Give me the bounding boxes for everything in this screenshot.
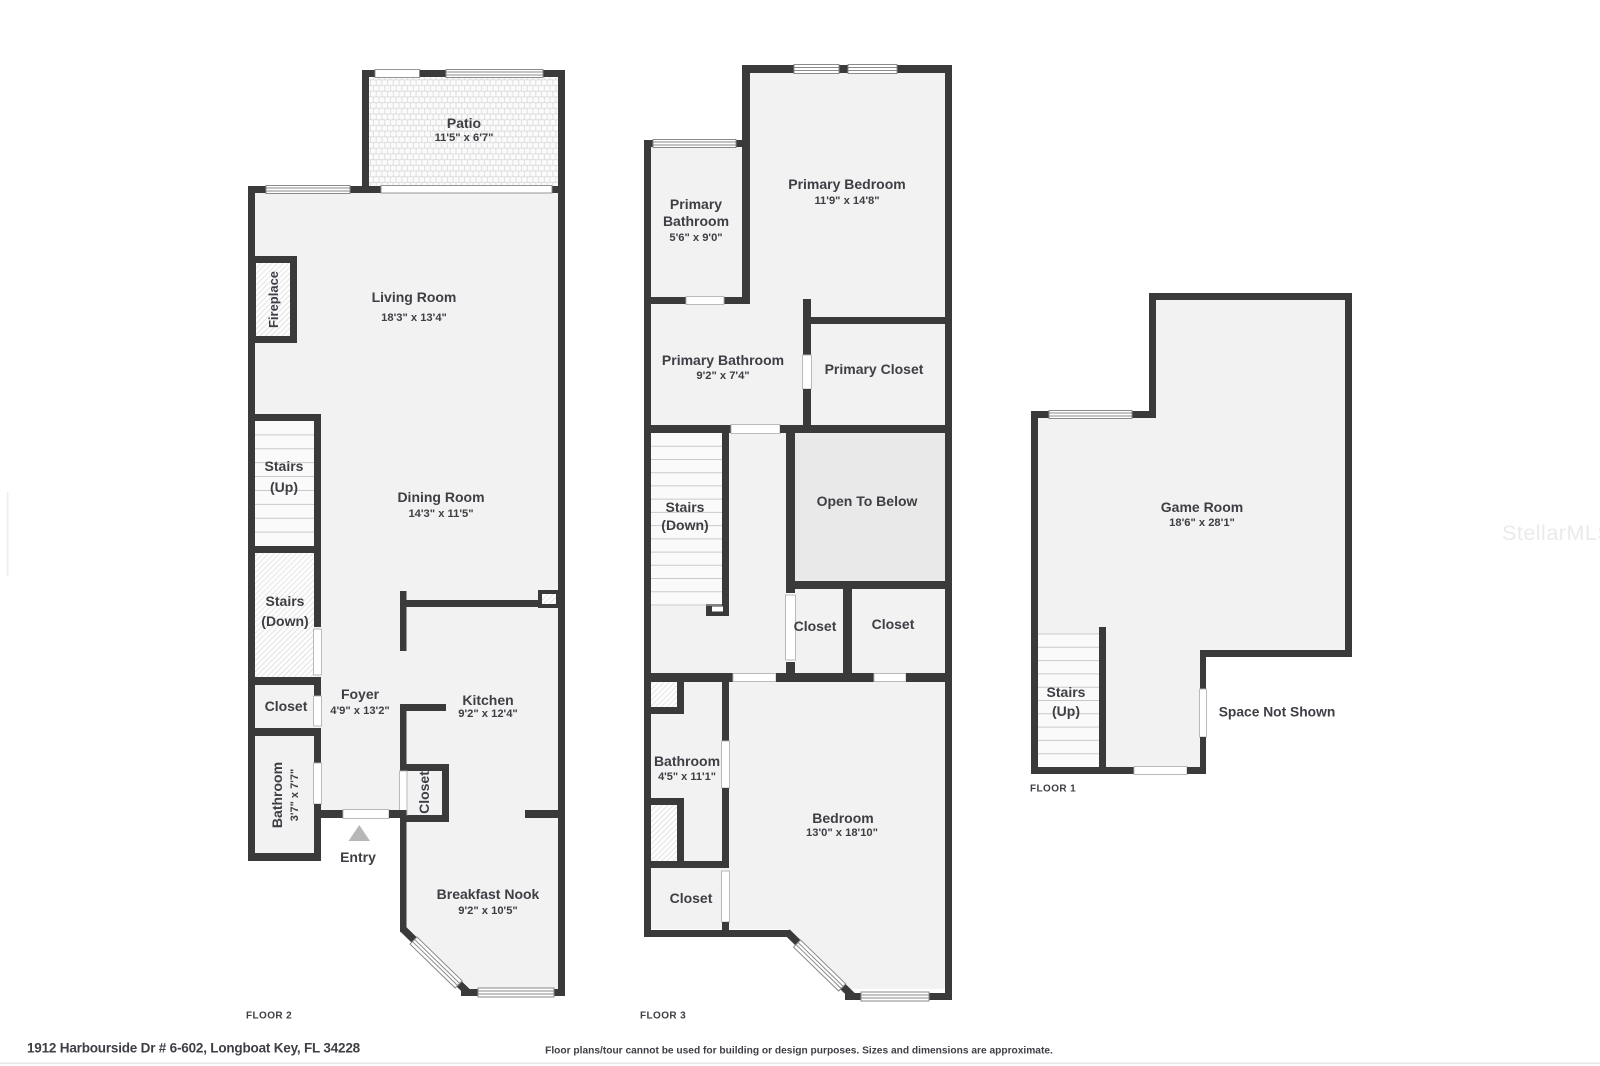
svg-text:Primary Bedroom: Primary Bedroom — [788, 176, 905, 192]
svg-text:(Down): (Down) — [661, 517, 708, 533]
svg-text:Bathroom: Bathroom — [654, 753, 720, 769]
svg-text:FLOOR 2: FLOOR 2 — [246, 1011, 292, 1022]
svg-text:Floor plans/tour cannot be use: Floor plans/tour cannot be used for buil… — [545, 1046, 1053, 1057]
svg-text:Stairs: Stairs — [666, 499, 705, 515]
svg-text:9'2" x 12'4": 9'2" x 12'4" — [458, 708, 517, 720]
svg-text:Primary Closet: Primary Closet — [825, 361, 924, 377]
svg-text:Stairs: Stairs — [1047, 684, 1086, 700]
svg-text:9'2" x 7'4": 9'2" x 7'4" — [696, 370, 749, 382]
svg-text:4'9" x 13'2": 4'9" x 13'2" — [330, 705, 389, 717]
svg-text:Bathroom: Bathroom — [663, 213, 729, 229]
svg-text:Fireplace: Fireplace — [266, 271, 281, 328]
svg-text:Entry: Entry — [340, 849, 376, 865]
svg-text:9'2" x 10'5": 9'2" x 10'5" — [458, 905, 517, 917]
svg-text:Closet: Closet — [265, 698, 308, 714]
svg-text:Open To Below: Open To Below — [817, 493, 918, 509]
svg-text:14'3" x 11'5": 14'3" x 11'5" — [408, 508, 473, 520]
svg-text:11'5" x 6'7": 11'5" x 6'7" — [435, 132, 494, 144]
svg-text:3'7" x 7'7": 3'7" x 7'7" — [289, 769, 301, 821]
svg-text:Foyer: Foyer — [341, 686, 380, 702]
svg-text:Bedroom: Bedroom — [812, 810, 873, 826]
svg-text:Closet: Closet — [416, 771, 432, 814]
svg-text:5'6" x 9'0": 5'6" x 9'0" — [669, 232, 722, 244]
svg-text:18'6" x 28'1": 18'6" x 28'1" — [1169, 517, 1235, 529]
svg-text:Stairs: Stairs — [266, 593, 305, 609]
svg-text:Space Not Shown: Space Not Shown — [1219, 705, 1336, 720]
svg-text:(Up): (Up) — [1052, 703, 1080, 719]
svg-text:Closet: Closet — [670, 890, 713, 906]
svg-text:1912 Harbourside Dr # 6-602, L: 1912 Harbourside Dr # 6-602, Longboat Ke… — [27, 1041, 361, 1056]
svg-text:Game Room: Game Room — [1161, 499, 1243, 515]
svg-text:Bathroom: Bathroom — [269, 762, 285, 828]
svg-text:13'0" x 18'10": 13'0" x 18'10" — [806, 827, 878, 839]
svg-text:(Down): (Down) — [261, 613, 308, 629]
svg-text:4'5" x 11'1": 4'5" x 11'1" — [658, 771, 716, 783]
svg-text:11'9" x 14'8": 11'9" x 14'8" — [814, 195, 879, 207]
svg-text:Kitchen: Kitchen — [462, 692, 513, 708]
svg-text:FLOOR 1: FLOOR 1 — [1030, 784, 1076, 795]
svg-text:Living Room: Living Room — [372, 289, 457, 305]
svg-text:Patio: Patio — [447, 115, 481, 131]
svg-text:Dining Room: Dining Room — [397, 489, 484, 505]
svg-text:18'3" x 13'4": 18'3" x 13'4" — [381, 312, 447, 324]
svg-text:Primary: Primary — [670, 196, 722, 212]
svg-text:Closet: Closet — [872, 616, 915, 632]
svg-text:FLOOR 3: FLOOR 3 — [640, 1011, 686, 1022]
svg-text:Closet: Closet — [794, 618, 837, 634]
svg-text:StellarMLS: StellarMLS — [1502, 521, 1600, 545]
svg-text:(Up): (Up) — [270, 479, 298, 495]
svg-text:Primary Bathroom: Primary Bathroom — [662, 352, 784, 368]
svg-text:Stairs: Stairs — [265, 458, 304, 474]
svg-text:Breakfast Nook: Breakfast Nook — [437, 886, 540, 902]
